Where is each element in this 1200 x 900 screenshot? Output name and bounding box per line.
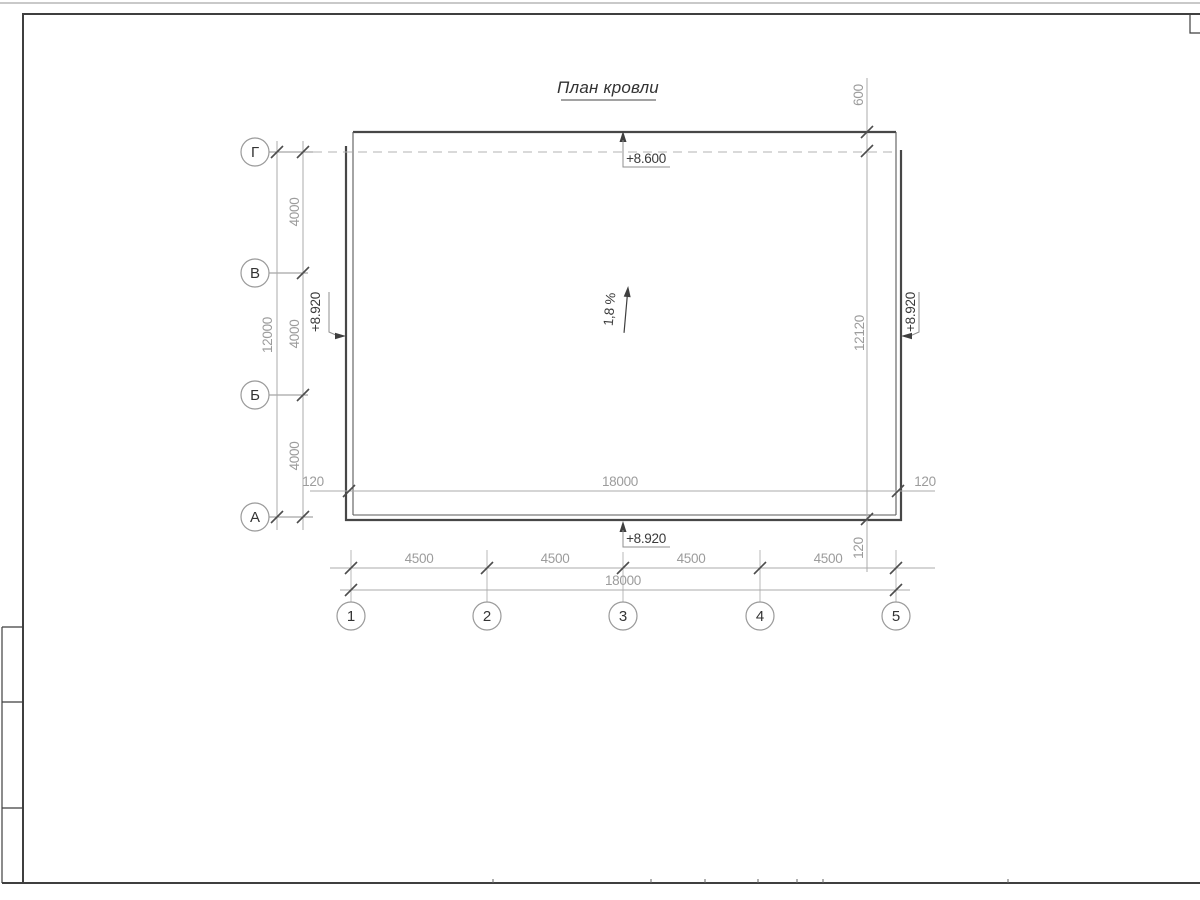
elevation-top-value: +8.600 [626, 151, 666, 166]
roof-plan-drawing: План кровли 12000 4000 4000 4000 [0, 0, 1200, 900]
bottom-dimension-lines: 4500 4500 4500 4500 18000 [330, 550, 935, 602]
axis-label-3: 3 [619, 608, 627, 625]
axis-label-b: Б [250, 387, 260, 404]
dim-roof-left-overhang: 120 [302, 474, 324, 489]
axis-label-5: 5 [892, 608, 900, 625]
dim-roof-total: 18000 [602, 474, 638, 489]
roof-width-dimension-line: 120 18000 120 [302, 474, 936, 497]
axis-label-a: А [250, 509, 260, 526]
dim-bottom-total: 18000 [605, 573, 641, 588]
dim-top-right-offset: 600 [851, 84, 866, 106]
dim-bottom-segment-3: 4500 [677, 551, 706, 566]
roof-outline [345, 132, 902, 521]
elevation-mark-top: +8.600 [620, 131, 671, 167]
dim-roof-right-overhang: 120 [914, 474, 936, 489]
drawing-sheet: План кровли 12000 4000 4000 4000 [0, 0, 1200, 900]
elevation-right-value: +8.920 [903, 292, 918, 332]
horizontal-axis-markers: 1 2 3 4 5 [337, 602, 910, 630]
drawing-title: План кровли [557, 78, 659, 100]
elevation-mark-bottom: +8.920 [620, 521, 671, 547]
elevation-left-value: +8.920 [308, 292, 323, 332]
slope-arrow-icon [624, 286, 632, 298]
sheet-frame [0, 3, 1200, 883]
frame-attachment-column [2, 627, 23, 883]
axis-label-4: 4 [756, 608, 764, 625]
left-dimension-lines: 12000 4000 4000 4000 [260, 141, 309, 530]
axis-label-g: Г [251, 144, 259, 161]
left-arrow-icon [901, 333, 912, 339]
dim-left-segment-2: 4000 [287, 320, 302, 349]
title-text: План кровли [557, 78, 659, 97]
dim-bottom-segment-4: 4500 [814, 551, 843, 566]
dim-right-total: 12120 [852, 315, 867, 351]
elevation-bottom-value: +8.920 [626, 531, 666, 546]
dim-bottom-segment-2: 4500 [541, 551, 570, 566]
dim-right-overhang: 120 [851, 537, 866, 559]
axis-label-1: 1 [347, 608, 355, 625]
axis-label-v: В [250, 265, 260, 282]
slope-indicator: 1,8 % [600, 284, 631, 333]
frame-corner-tab [1190, 14, 1200, 33]
dim-left-segment-3: 4000 [287, 442, 302, 471]
elevation-mark-right: +8.920 [901, 292, 919, 339]
frame-border [23, 14, 1200, 883]
right-arrow-icon [335, 333, 346, 339]
dim-left-total: 12000 [260, 317, 275, 353]
dim-bottom-segment-1: 4500 [405, 551, 434, 566]
axis-label-2: 2 [483, 608, 491, 625]
elevation-mark-left: +8.920 [308, 292, 346, 339]
slope-value: 1,8 % [601, 292, 619, 326]
dim-left-segment-1: 4000 [287, 198, 302, 227]
